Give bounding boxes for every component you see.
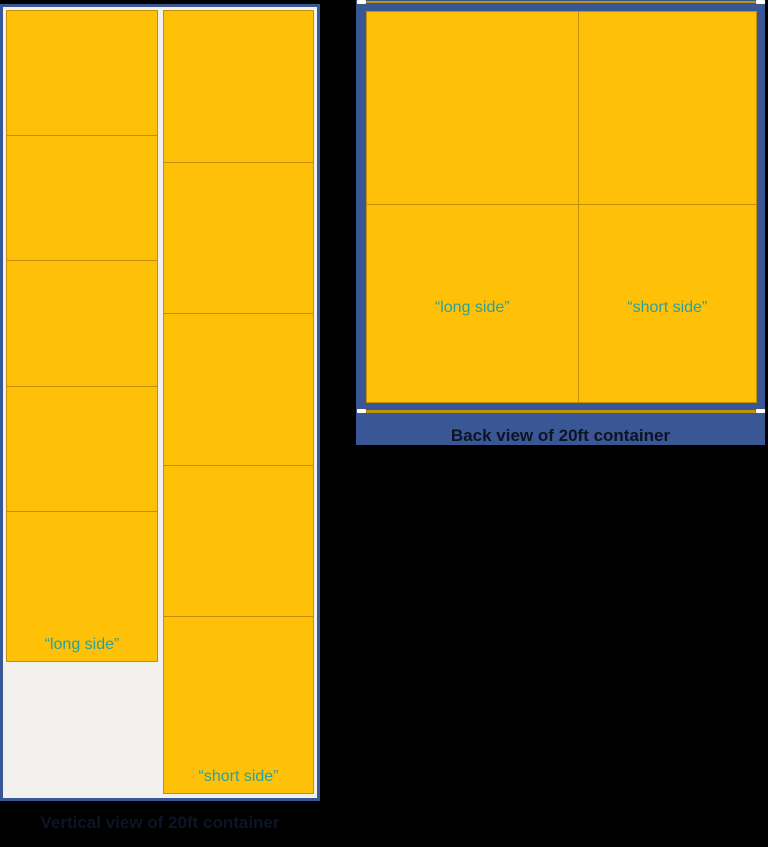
pallet-box[interactable] [579, 12, 756, 204]
pallet-column-short-side: “short side” [163, 10, 314, 794]
pallet-box[interactable]: “long side” [367, 205, 578, 402]
short-side-label: “short side” [198, 768, 278, 793]
pallet-box[interactable] [164, 466, 313, 617]
pallet-box[interactable]: “short side” [164, 617, 313, 793]
slide-canvas: “long side” “short side” Vertical view o… [0, 0, 768, 847]
vertical-view-container[interactable]: “long side” “short side” [0, 4, 320, 801]
pallet-box[interactable] [164, 163, 313, 314]
pallet-box[interactable] [7, 261, 157, 385]
long-side-label: “long side” [45, 636, 120, 661]
back-view-caption: Back view of 20ft container [356, 426, 765, 446]
pallet-column-long-side: “long side” [6, 10, 158, 662]
pallet-box[interactable] [7, 387, 157, 511]
back-view-pallet-grid: “long side” “short side” [366, 11, 758, 404]
container-floor-line[interactable] [362, 410, 760, 413]
container-top-line[interactable] [362, 1, 760, 4]
pallet-box[interactable]: “long side” [7, 512, 157, 661]
pallet-box[interactable] [367, 12, 578, 204]
line-drag-handle[interactable] [357, 0, 366, 4]
line-drag-handle[interactable] [357, 409, 366, 413]
pallet-box[interactable] [7, 11, 157, 135]
pallet-box[interactable]: “short side” [579, 205, 756, 402]
vertical-view-caption: Vertical view of 20ft container [0, 813, 320, 833]
line-drag-handle[interactable] [756, 409, 765, 413]
line-drag-handle[interactable] [756, 0, 765, 4]
short-side-label: “short side” [627, 289, 707, 317]
back-view-container[interactable]: “long side” “short side” Back view of 20… [356, 0, 765, 445]
pallet-box[interactable] [7, 136, 157, 260]
pallet-box[interactable] [164, 11, 313, 162]
long-side-label: “long side” [435, 289, 510, 317]
pallet-box[interactable] [164, 314, 313, 465]
